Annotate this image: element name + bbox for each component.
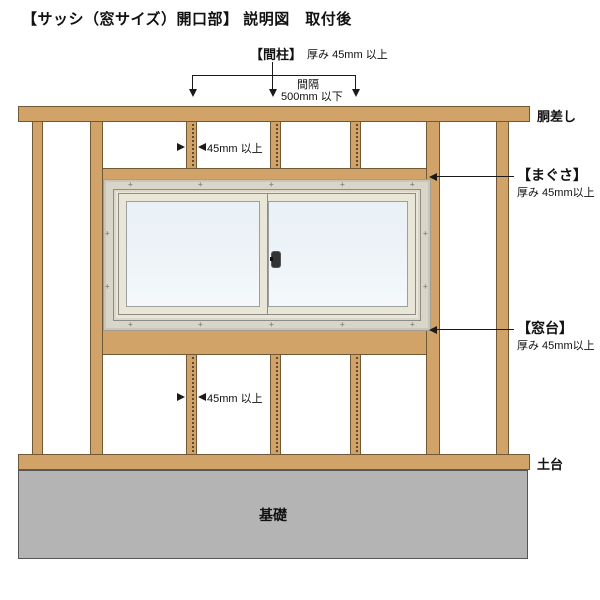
- lower-stud-width-label: 45mm 以上: [207, 390, 263, 406]
- spacer-stud-lower: [270, 354, 281, 455]
- ground-sill-label: 土台: [537, 454, 563, 473]
- spacer-stud-lower: [350, 354, 361, 455]
- screw-mark-icon: +: [340, 181, 345, 188]
- dim-arrow-left-icon: [198, 393, 206, 401]
- stud-arrow-stem-left: [192, 75, 193, 90]
- window-pane-left: [119, 194, 267, 314]
- sill-spec: 厚み 45mm以上: [517, 337, 595, 353]
- page-title: 【サッシ（窓サイズ）開口部】 説明図 取付後: [22, 8, 352, 29]
- screw-mark-icon: +: [269, 321, 274, 328]
- girder-beam: [18, 106, 530, 122]
- down-arrow-icon: [269, 89, 277, 97]
- dim-arrow-left-icon: [198, 143, 206, 151]
- spacer-stud-lower: [186, 354, 197, 455]
- screw-mark-icon: +: [340, 321, 345, 328]
- stud-annotation-spec: 厚み 45mm 以上: [307, 46, 388, 63]
- window-pane-right: [261, 194, 415, 314]
- screw-mark-icon: +: [105, 283, 110, 290]
- stud-arrow-stem-right: [355, 75, 356, 90]
- stud-annotation-leader-line: [272, 62, 273, 90]
- screw-mark-icon: +: [423, 230, 428, 237]
- down-arrow-icon: [189, 89, 197, 97]
- girder-label: 胴差し: [537, 106, 576, 125]
- spacer-stud-upper: [270, 121, 281, 169]
- stud-annotation-label: 【間柱】: [250, 44, 302, 63]
- header-spec: 厚み 45mm以上: [517, 184, 595, 200]
- screw-mark-icon: +: [410, 181, 415, 188]
- foundation-label: 基礎: [259, 505, 287, 525]
- screw-mark-icon: +: [198, 321, 203, 328]
- screw-mark-icon: +: [198, 181, 203, 188]
- screw-mark-icon: +: [105, 230, 110, 237]
- sill-label: 【窓台】: [517, 318, 573, 338]
- spacing-value: 500mm 以下: [281, 88, 343, 104]
- screw-mark-icon: +: [423, 283, 428, 290]
- screw-mark-icon: +: [128, 181, 133, 188]
- upper-stud-width-label: 45mm 以上: [207, 140, 263, 156]
- stud-far-left: [32, 121, 43, 455]
- spacer-stud-upper: [350, 121, 361, 169]
- stud-annotation: 【間柱】 厚み 45mm 以上: [250, 44, 388, 63]
- left-arrow-icon: [429, 326, 437, 334]
- dim-arrow-right-icon: [177, 143, 185, 151]
- diagram-canvas: 【サッシ（窓サイズ）開口部】 説明図 取付後 【間柱】 厚み 45mm 以上 間…: [0, 0, 600, 600]
- screw-mark-icon: +: [410, 321, 415, 328]
- dim-arrow-right-icon: [177, 393, 185, 401]
- window-sill-beam: [102, 330, 427, 355]
- screw-mark-icon: +: [269, 181, 274, 188]
- crescent-lock-icon: [272, 252, 280, 267]
- down-arrow-icon: [352, 89, 360, 97]
- screw-mark-icon: +: [128, 321, 133, 328]
- header-label: 【まぐさ】: [517, 165, 587, 185]
- stud-far-right: [496, 121, 509, 455]
- foundation-block: 基礎: [18, 470, 528, 559]
- left-arrow-icon: [429, 173, 437, 181]
- ground-sill-beam: [18, 454, 530, 470]
- sill-leader-line: [434, 329, 514, 330]
- stud-bracket-line: [192, 75, 356, 76]
- spacer-stud-upper: [186, 121, 197, 169]
- header-leader-line: [434, 176, 514, 177]
